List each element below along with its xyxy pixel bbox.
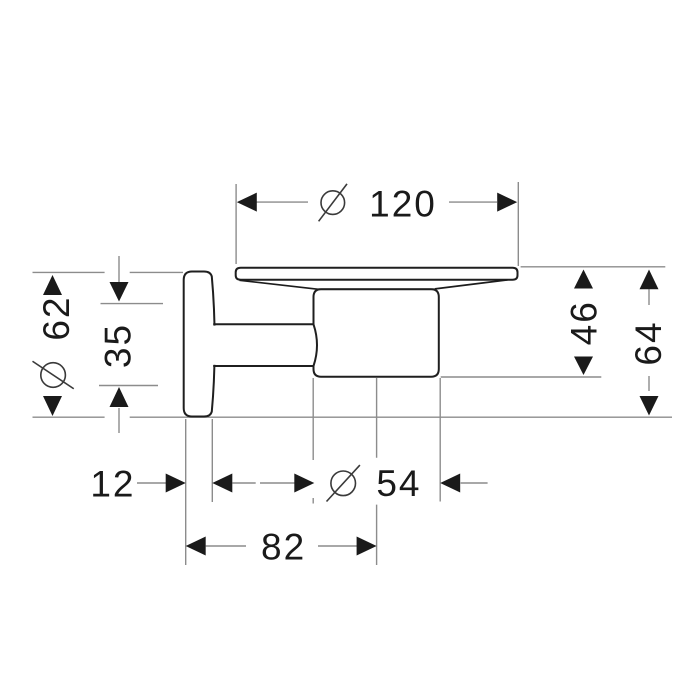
svg-text:62: 62	[36, 296, 77, 341]
svg-text:35: 35	[98, 323, 139, 368]
svg-text:12: 12	[90, 464, 135, 505]
svg-text:82: 82	[261, 527, 306, 568]
svg-text:120: 120	[369, 184, 437, 225]
svg-text:46: 46	[564, 300, 605, 345]
svg-text:64: 64	[628, 320, 669, 365]
svg-text:54: 54	[376, 463, 421, 504]
